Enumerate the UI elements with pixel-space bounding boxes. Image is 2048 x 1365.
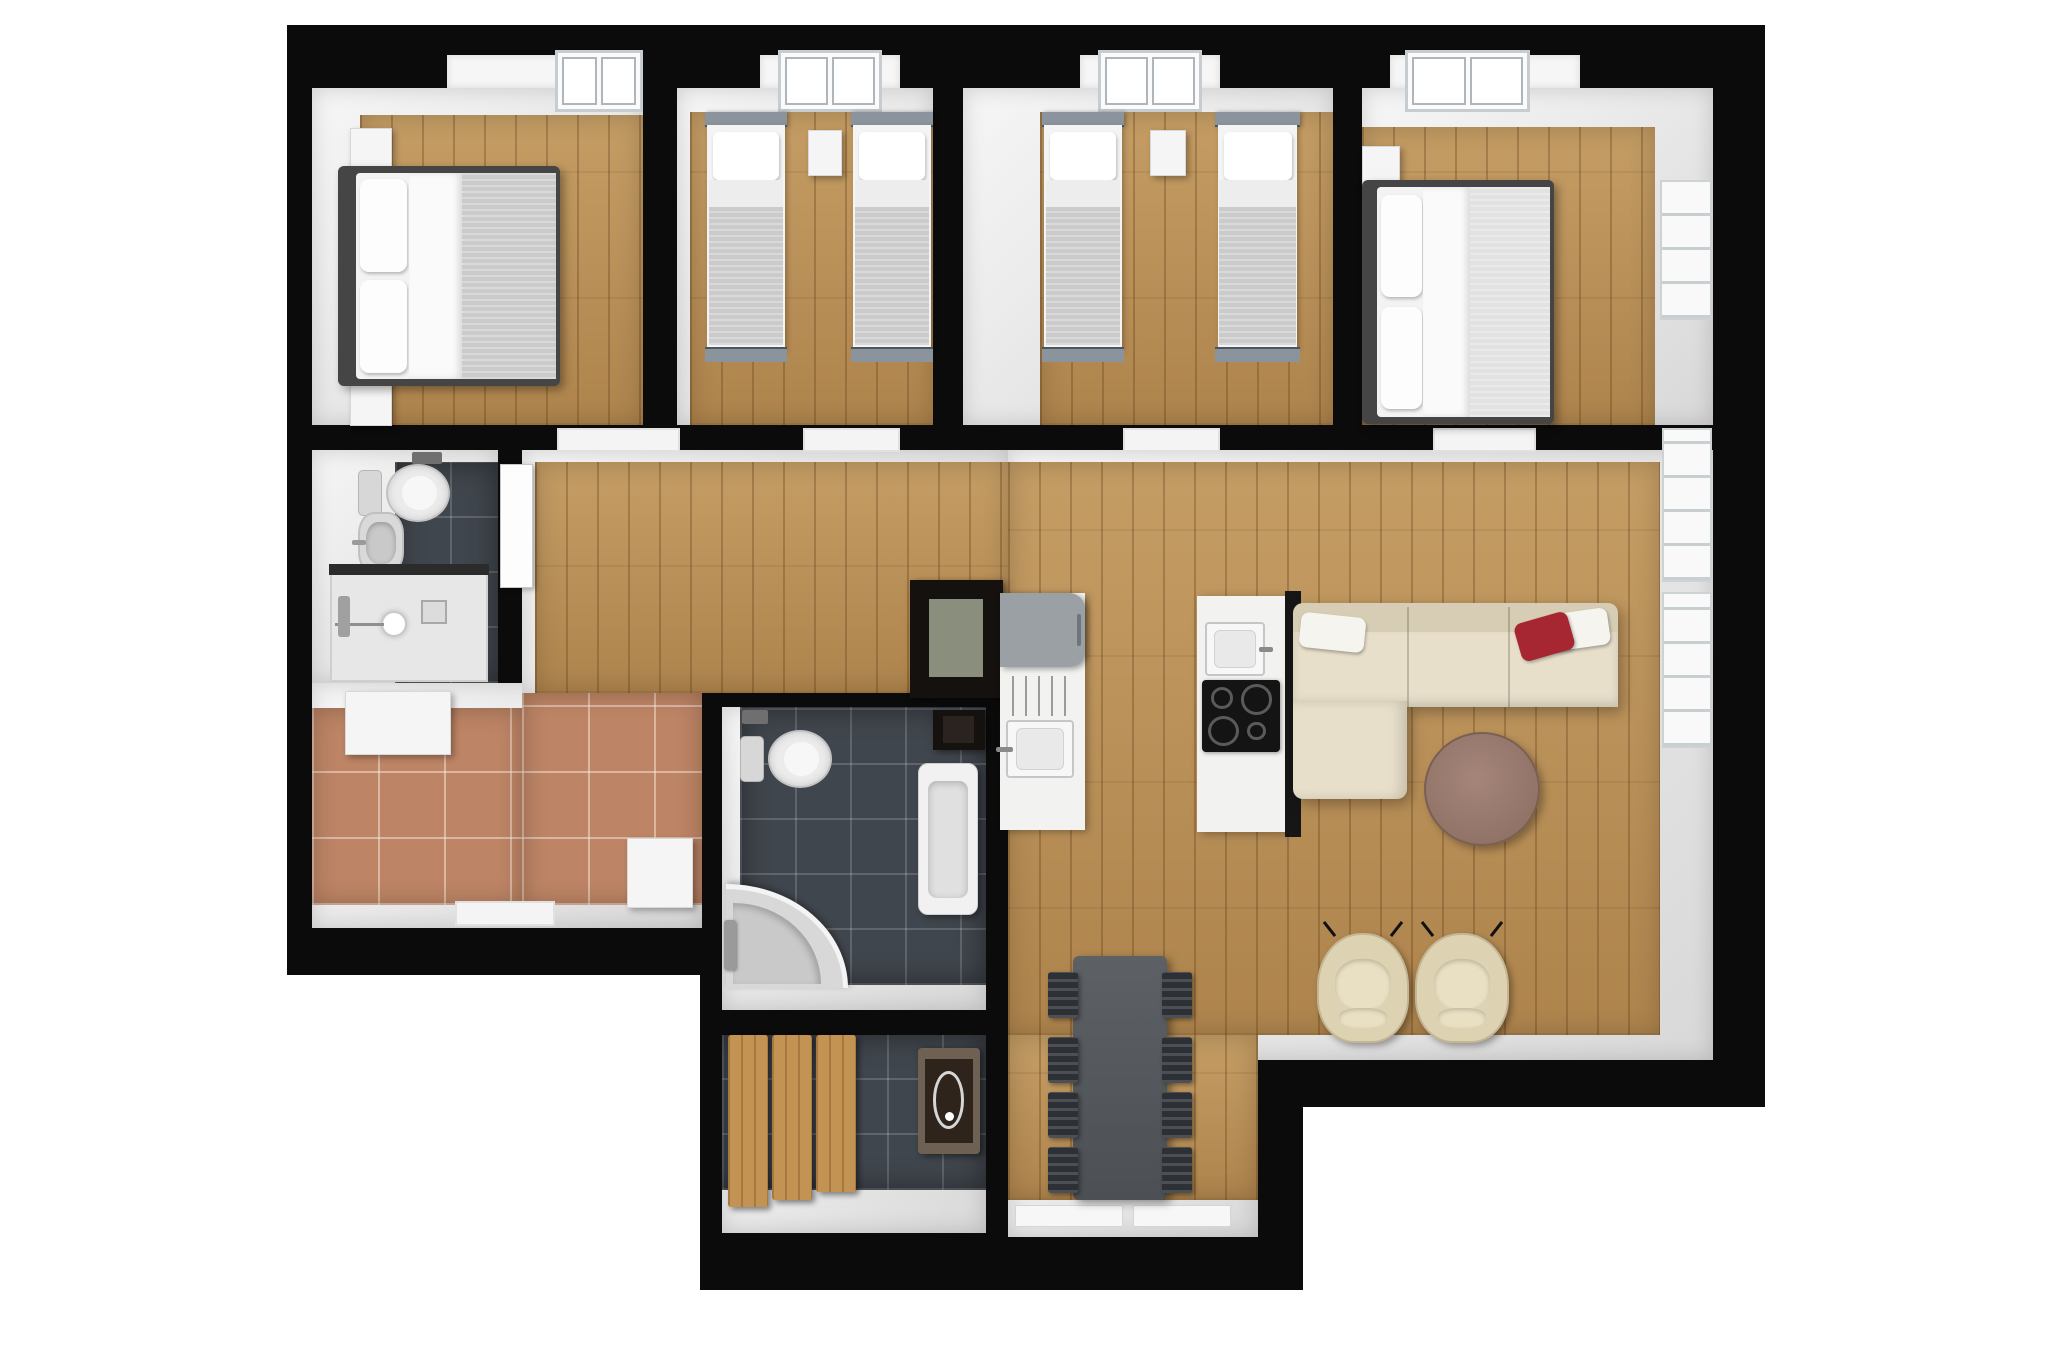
pillow	[360, 179, 407, 271]
window-living-east-2	[1662, 592, 1712, 748]
window-bedroom4-east	[1660, 180, 1712, 320]
sauna-heater	[918, 1048, 980, 1154]
island-sink	[1205, 622, 1265, 676]
blanket	[1470, 187, 1551, 416]
tub-interior	[928, 781, 969, 898]
footboard	[705, 347, 787, 362]
kitchen-sink	[1006, 720, 1074, 778]
cabinet-bath2	[933, 710, 985, 750]
kitchen-drainer	[1012, 676, 1072, 716]
heater-light	[945, 1112, 954, 1121]
faucet-icon	[1259, 647, 1274, 652]
window-nook-south-2	[1133, 1205, 1231, 1227]
shower-rim	[329, 564, 489, 575]
pillow	[1381, 307, 1421, 409]
blanket	[855, 207, 929, 345]
duvet-fold	[1046, 180, 1120, 208]
chaise-lounge	[1293, 701, 1407, 799]
footboard	[851, 347, 933, 362]
chair-cushion	[1335, 959, 1390, 1010]
door-sill-entrance	[455, 901, 555, 926]
armchair-east	[1415, 933, 1509, 1043]
cushion-white	[1298, 611, 1366, 653]
island-cooktop	[1202, 680, 1280, 752]
skylight-pane	[1105, 57, 1148, 105]
wall-nook-south	[1008, 1237, 1303, 1290]
bench-entrance	[627, 838, 693, 908]
duvet-fold	[855, 180, 929, 208]
skylight-pane	[1470, 57, 1524, 105]
nightstand-bedroom1-south	[350, 380, 392, 426]
sauna-bench-1	[728, 1035, 768, 1207]
wall-block-south	[700, 1233, 1008, 1290]
pillow	[713, 132, 779, 180]
armchair-west	[1317, 933, 1409, 1043]
toilet-paper-holder-bath1	[412, 452, 442, 464]
tall-cabinet-kitchen	[910, 580, 1003, 698]
blanket	[709, 207, 783, 345]
burner	[1208, 716, 1239, 746]
sauna-bench-3	[816, 1035, 856, 1192]
dining-chair-west-2	[1048, 1037, 1078, 1083]
basin	[366, 522, 396, 564]
chair-seat	[1339, 1008, 1387, 1028]
twin-bed-bedroom2-west	[705, 112, 787, 362]
blanket	[1219, 207, 1296, 345]
bathtub-bath2	[918, 763, 978, 915]
skylight-pane	[1152, 57, 1195, 105]
dining-chair-west-3	[1048, 1092, 1078, 1138]
cabinet-entrance	[345, 691, 451, 755]
toilet-bath2	[740, 730, 832, 788]
cistern	[358, 470, 382, 516]
double-bed-bedroom1	[338, 166, 560, 386]
floorplan	[0, 0, 2048, 1365]
dining-table	[1073, 956, 1167, 1200]
shower-head-icon	[381, 611, 407, 637]
bowl-seat	[784, 742, 819, 777]
bowl-seat	[402, 476, 437, 511]
sink-bowl	[1214, 630, 1257, 668]
toilet-paper-holder-bath2	[742, 710, 768, 724]
skylight-pane	[832, 57, 875, 105]
skylight-pane	[785, 57, 828, 105]
cabinet-top	[943, 716, 973, 742]
door-threshold-bedroom2	[803, 428, 900, 452]
skylight-bedroom3	[1098, 50, 1202, 112]
sauna-bench-2	[772, 1035, 812, 1200]
skylight-bedroom2	[778, 50, 882, 112]
corner-shower-bath2	[726, 884, 848, 988]
dining-chair-east-4	[1162, 1147, 1192, 1193]
duvet-fold	[709, 180, 783, 208]
sink-bowl	[1016, 728, 1065, 769]
nightstand-bedroom2	[808, 130, 842, 176]
dining-chair-east-2	[1162, 1037, 1192, 1083]
dining-chair-west-4	[1048, 1147, 1078, 1193]
door-threshold-bedroom1	[557, 428, 680, 452]
door-threshold-bedroom3	[1123, 428, 1220, 452]
chair-seat	[1438, 1008, 1487, 1028]
twin-bed-bedroom3-west	[1042, 112, 1124, 362]
pillow	[360, 280, 407, 372]
window-nook-south-1	[1015, 1205, 1123, 1227]
blanket	[1046, 207, 1120, 345]
shower-valve	[338, 596, 350, 637]
wall-left	[287, 25, 312, 975]
cabinet-top	[929, 599, 983, 677]
pillow	[1381, 195, 1421, 297]
burner	[1241, 684, 1272, 714]
burner	[1211, 687, 1233, 709]
footboard	[1215, 347, 1300, 362]
wall-block-mid	[700, 1010, 1008, 1035]
duvet-fold	[409, 173, 462, 380]
skylight-pane	[1412, 57, 1466, 105]
coffee-table	[1424, 732, 1540, 846]
cistern	[740, 736, 764, 782]
twin-bed-bedroom2-east	[851, 112, 933, 362]
nightstand-bedroom3	[1150, 130, 1186, 176]
shower-bath1	[330, 570, 488, 682]
kitchen-appliance	[1000, 593, 1085, 667]
skylight-bedroom1	[555, 50, 643, 112]
wall-right	[1713, 25, 1765, 1107]
duvet-fold	[1423, 187, 1469, 416]
appliance-handle	[1077, 614, 1081, 647]
skylight-bedroom4	[1405, 50, 1530, 112]
chair-cushion	[1434, 959, 1490, 1010]
seam	[1407, 607, 1409, 707]
burner	[1247, 722, 1266, 741]
footboard	[1042, 347, 1124, 362]
duvet-fold	[1219, 180, 1296, 208]
drain	[421, 600, 447, 624]
double-bed-bedroom4	[1362, 180, 1554, 424]
pillow	[1050, 132, 1116, 180]
faucet-icon	[352, 540, 366, 546]
wall-block-west	[700, 685, 722, 1290]
skylight-pane	[562, 57, 597, 105]
shower-valve-bath2	[724, 920, 736, 970]
door-leaf-hall	[500, 464, 533, 588]
faucet-icon	[996, 747, 1013, 752]
pillow	[859, 132, 925, 180]
window-living-east-1	[1662, 428, 1712, 582]
twin-bed-bedroom3-east	[1215, 112, 1300, 362]
dining-chair-east-3	[1162, 1092, 1192, 1138]
seam	[1508, 607, 1510, 707]
wall-div-bedroom2-3	[933, 50, 963, 450]
door-threshold-bedroom4	[1433, 428, 1536, 452]
skylight-pane	[601, 57, 636, 105]
wall-living-south	[1295, 1060, 1765, 1107]
blanket	[462, 173, 555, 380]
wall-entrance-south	[287, 928, 722, 975]
dining-chair-east-1	[1162, 972, 1192, 1018]
wall-div-bedroom1-2	[643, 50, 677, 450]
wall-div-bedroom3-4	[1333, 50, 1362, 450]
pillow	[1224, 132, 1292, 180]
dining-chair-west-1	[1048, 972, 1078, 1018]
